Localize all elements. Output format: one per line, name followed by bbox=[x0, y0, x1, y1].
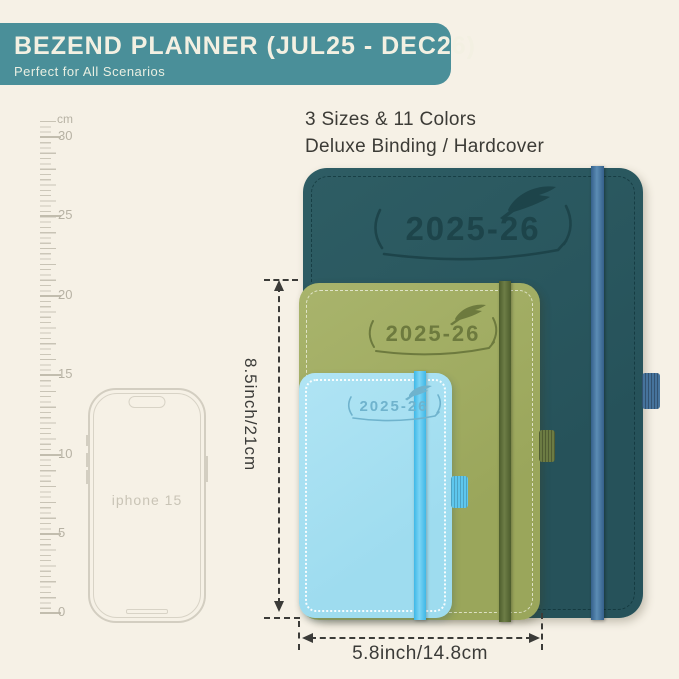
ruler-label-30: 30 bbox=[58, 128, 72, 143]
iphone-action-button bbox=[86, 435, 88, 446]
iphone-power-button bbox=[206, 456, 208, 482]
ruler-label-10: 10 bbox=[58, 446, 72, 461]
year-text: 2025-26 bbox=[405, 210, 540, 247]
iphone-label: iphone 15 bbox=[90, 492, 204, 508]
left-arc bbox=[370, 321, 374, 347]
planner-small-blue: 2025-26 bbox=[299, 373, 452, 618]
arrow-down-icon bbox=[274, 601, 284, 612]
iphone-dynamic-island bbox=[129, 396, 166, 408]
left-arc bbox=[349, 397, 352, 415]
banner-subtitle: Perfect for All Scenarios bbox=[14, 64, 451, 79]
iphone-home-indicator bbox=[126, 609, 168, 614]
width-dimension-label: 5.8inch/14.8cm bbox=[330, 643, 510, 665]
ruler-cm-ticks bbox=[40, 121, 56, 617]
ruler-unit-label: cm bbox=[57, 112, 73, 126]
ruler-label-15: 15 bbox=[58, 366, 72, 381]
height-dimension-label: 8.5inch/21cm bbox=[240, 358, 260, 471]
pen-loop bbox=[539, 430, 555, 462]
dim-tick-bottom bbox=[264, 617, 300, 619]
arrow-right-icon bbox=[529, 633, 540, 643]
ruler-label-0: 0 bbox=[58, 604, 65, 619]
iphone-volume-up-button bbox=[86, 453, 88, 467]
year-emboss: 2025-26 bbox=[339, 385, 454, 427]
year-emboss: 2025-26 bbox=[358, 184, 593, 264]
year-emboss: 2025-26 bbox=[357, 303, 512, 359]
right-arc bbox=[564, 206, 571, 244]
ruler-label-5: 5 bbox=[58, 525, 65, 540]
pen-loop bbox=[451, 476, 468, 508]
feature-line-sizes: 3 Sizes & 11 Colors bbox=[305, 106, 544, 133]
banner-title: BEZEND PLANNER (JUL25 - DEC26) bbox=[14, 32, 451, 61]
ruler-label-20: 20 bbox=[58, 287, 72, 302]
dim-line-horizontal bbox=[310, 637, 532, 639]
feature-line-binding: Deluxe Binding / Hardcover bbox=[305, 133, 544, 160]
dim-line-vertical bbox=[278, 286, 280, 604]
dim-boundary-right bbox=[541, 613, 543, 650]
feature-text: 3 Sizes & 11 Colors Deluxe Binding / Har… bbox=[305, 106, 544, 160]
banner: BEZEND PLANNER (JUL25 - DEC26) Perfect f… bbox=[0, 23, 451, 85]
right-arc bbox=[437, 395, 440, 413]
arrow-left-icon bbox=[302, 633, 313, 643]
ruler-label-25: 25 bbox=[58, 207, 72, 222]
arrow-up-icon bbox=[274, 280, 284, 291]
right-arc bbox=[492, 318, 496, 344]
product-image: BEZEND PLANNER (JUL25 - DEC26) Perfect f… bbox=[0, 0, 679, 679]
left-arc bbox=[375, 210, 382, 248]
iphone-outline: iphone 15 bbox=[88, 388, 206, 623]
year-text: 2025-26 bbox=[359, 398, 428, 415]
iphone-volume-down-button bbox=[86, 470, 88, 484]
dim-boundary-left bbox=[298, 621, 300, 650]
year-text: 2025-26 bbox=[386, 321, 481, 346]
pen-loop bbox=[642, 373, 660, 409]
